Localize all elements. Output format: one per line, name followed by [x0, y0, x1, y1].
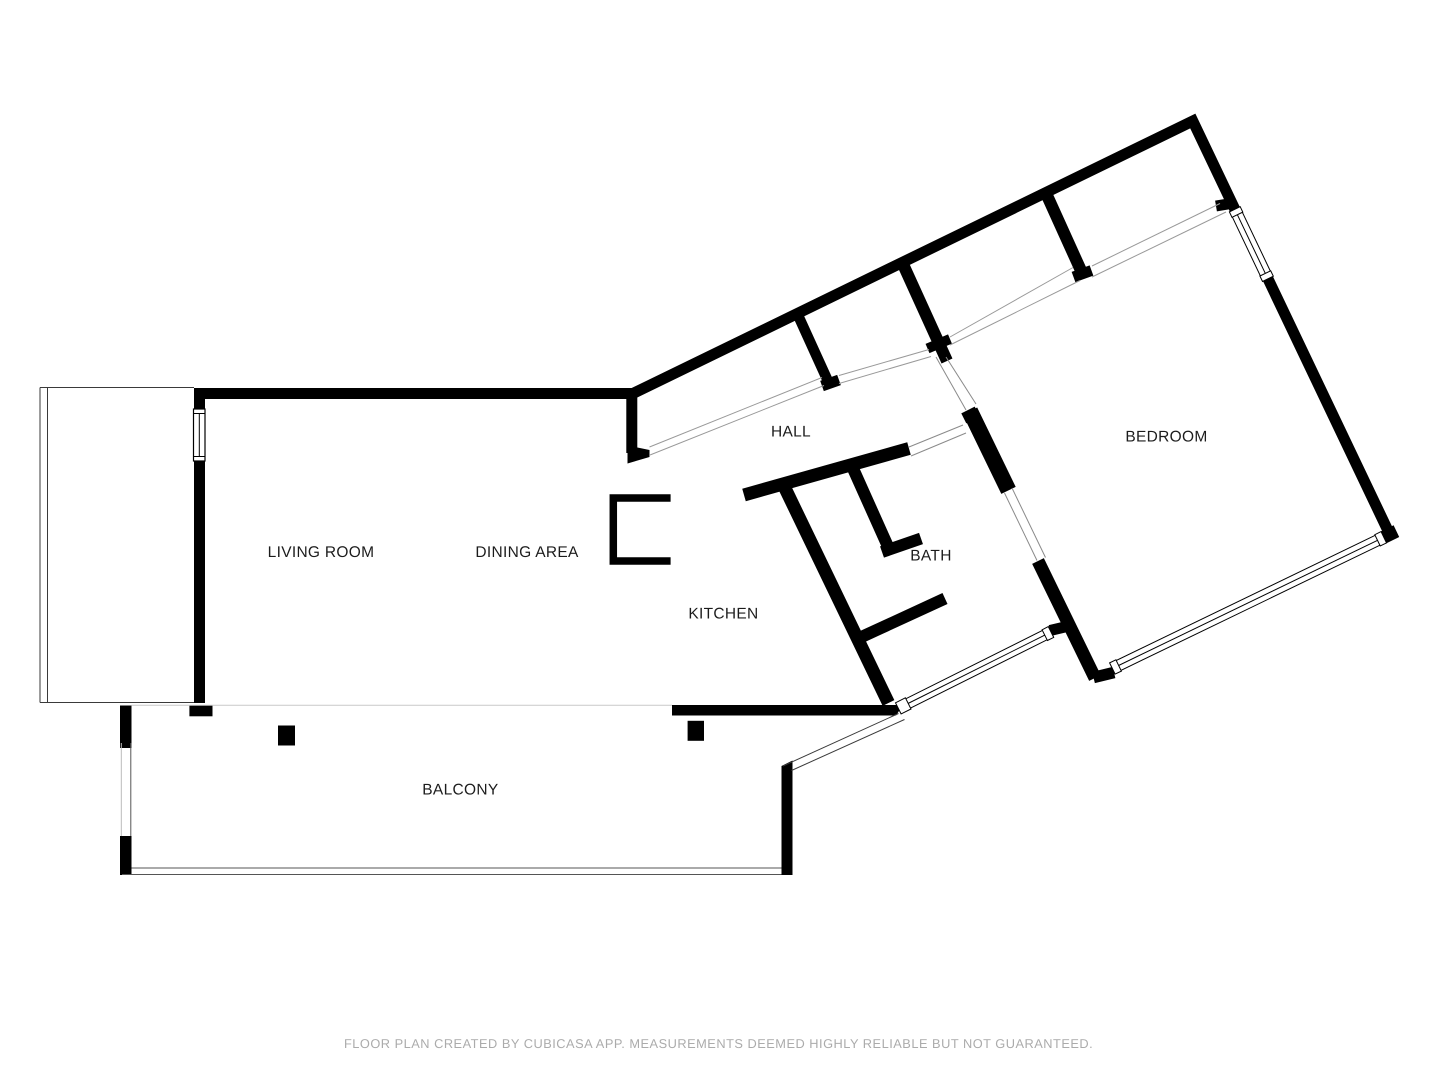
- svg-text:FLOOR PLAN CREATED BY CUBICASA: FLOOR PLAN CREATED BY CUBICASA APP. MEAS…: [344, 1036, 1093, 1051]
- svg-text:BEDROOM: BEDROOM: [1125, 429, 1207, 446]
- svg-text:DINING AREA: DINING AREA: [475, 544, 579, 561]
- svg-text:HALL: HALL: [771, 424, 811, 441]
- svg-text:BALCONY: BALCONY: [422, 782, 498, 799]
- svg-text:LIVING ROOM: LIVING ROOM: [268, 544, 375, 561]
- svg-text:KITCHEN: KITCHEN: [688, 606, 758, 623]
- svg-text:BATH: BATH: [910, 548, 951, 565]
